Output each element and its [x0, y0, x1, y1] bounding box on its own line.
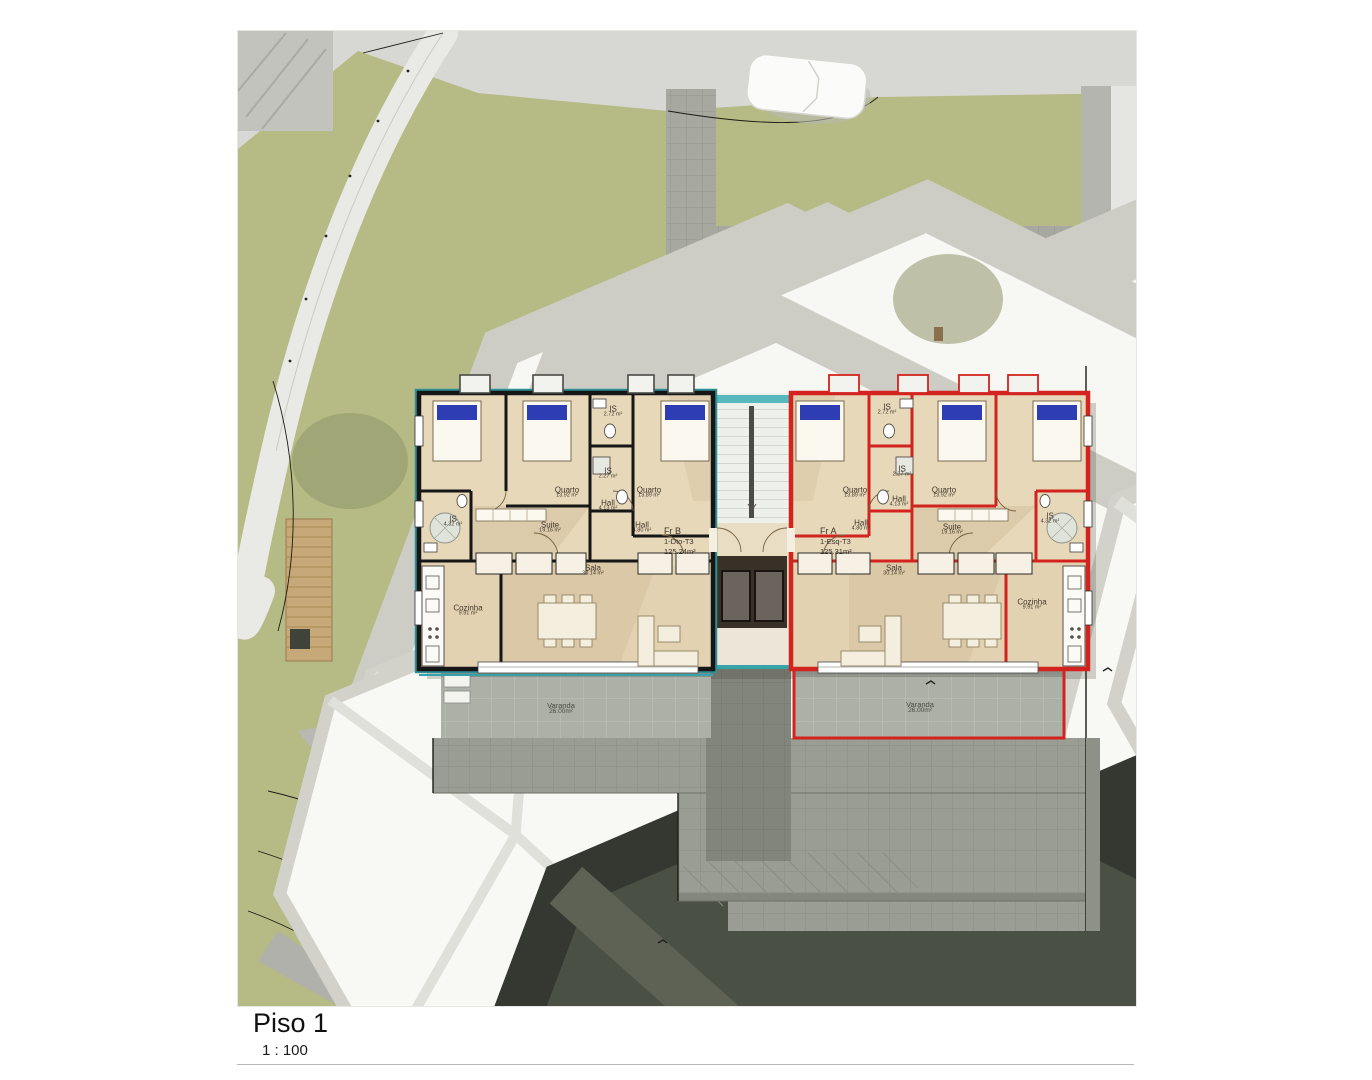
stair-core	[713, 393, 791, 669]
scale-label: 1 : 100	[262, 1042, 308, 1059]
floor-title: Piso 1	[253, 1008, 328, 1039]
site-plan-render: Quarto13.92 m² Quarto13.89 m² IS2.72 m² …	[237, 30, 1137, 1007]
site-plan-graphics	[238, 31, 1136, 1006]
drawing-sheet: Quarto13.92 m² Quarto13.89 m² IS2.72 m² …	[0, 0, 1372, 1080]
varanda-frb	[441, 669, 711, 738]
varanda-fra	[794, 669, 1064, 738]
title-divider	[237, 1064, 1134, 1065]
